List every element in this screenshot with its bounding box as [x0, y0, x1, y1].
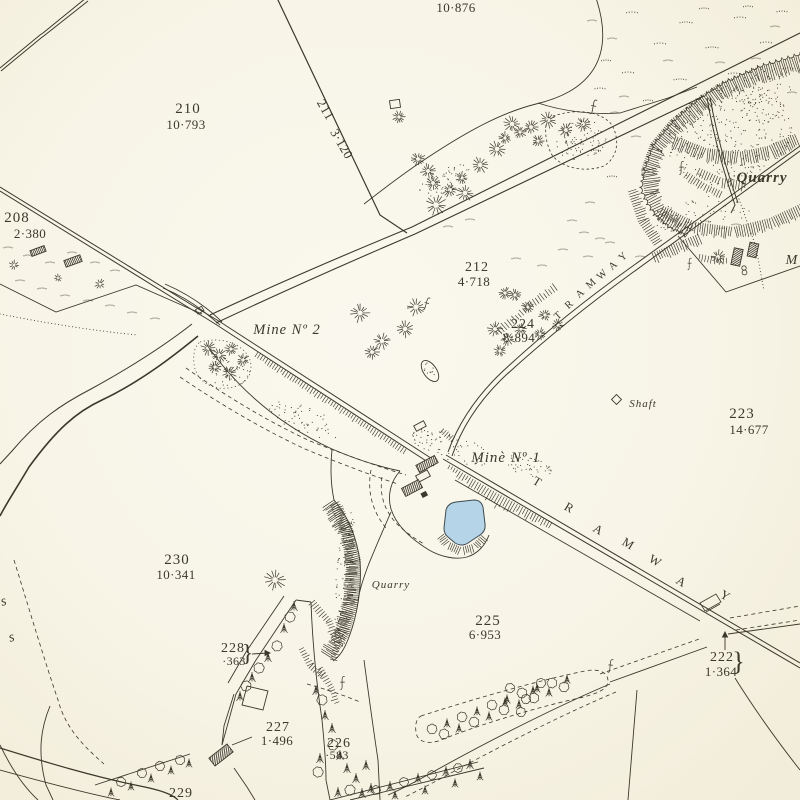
- svg-text:210: 210: [175, 101, 201, 117]
- svg-text:Shaft: Shaft: [629, 398, 657, 410]
- svg-text:Mine Nº 2: Mine Nº 2: [252, 322, 320, 338]
- svg-text:10·876: 10·876: [436, 0, 475, 15]
- svg-text:Quarry: Quarry: [736, 170, 787, 186]
- svg-text:}: }: [242, 641, 255, 667]
- svg-text:14·677: 14·677: [729, 422, 768, 437]
- svg-text:Quarry: Quarry: [372, 579, 410, 591]
- svg-text:Minè Nº 1: Minè Nº 1: [470, 450, 540, 466]
- svg-text:10·341: 10·341: [156, 567, 195, 582]
- svg-text:M: M: [785, 253, 799, 268]
- svg-text:4·718: 4·718: [458, 274, 490, 289]
- svg-text:2·380: 2·380: [14, 226, 46, 241]
- svg-text:}: }: [732, 647, 745, 676]
- svg-text:230: 230: [164, 552, 190, 568]
- svg-text:229: 229: [169, 786, 193, 800]
- svg-text:212: 212: [465, 260, 489, 275]
- svg-text:8·894: 8·894: [503, 330, 535, 345]
- svg-text:222: 222: [710, 650, 734, 665]
- svg-text:223: 223: [729, 406, 755, 422]
- svg-text:10·793: 10·793: [166, 117, 205, 132]
- svg-text:·583: ·583: [325, 748, 349, 762]
- svg-text:1·496: 1·496: [261, 733, 293, 748]
- svg-text:6·953: 6·953: [469, 627, 501, 642]
- svg-text:208: 208: [4, 210, 30, 226]
